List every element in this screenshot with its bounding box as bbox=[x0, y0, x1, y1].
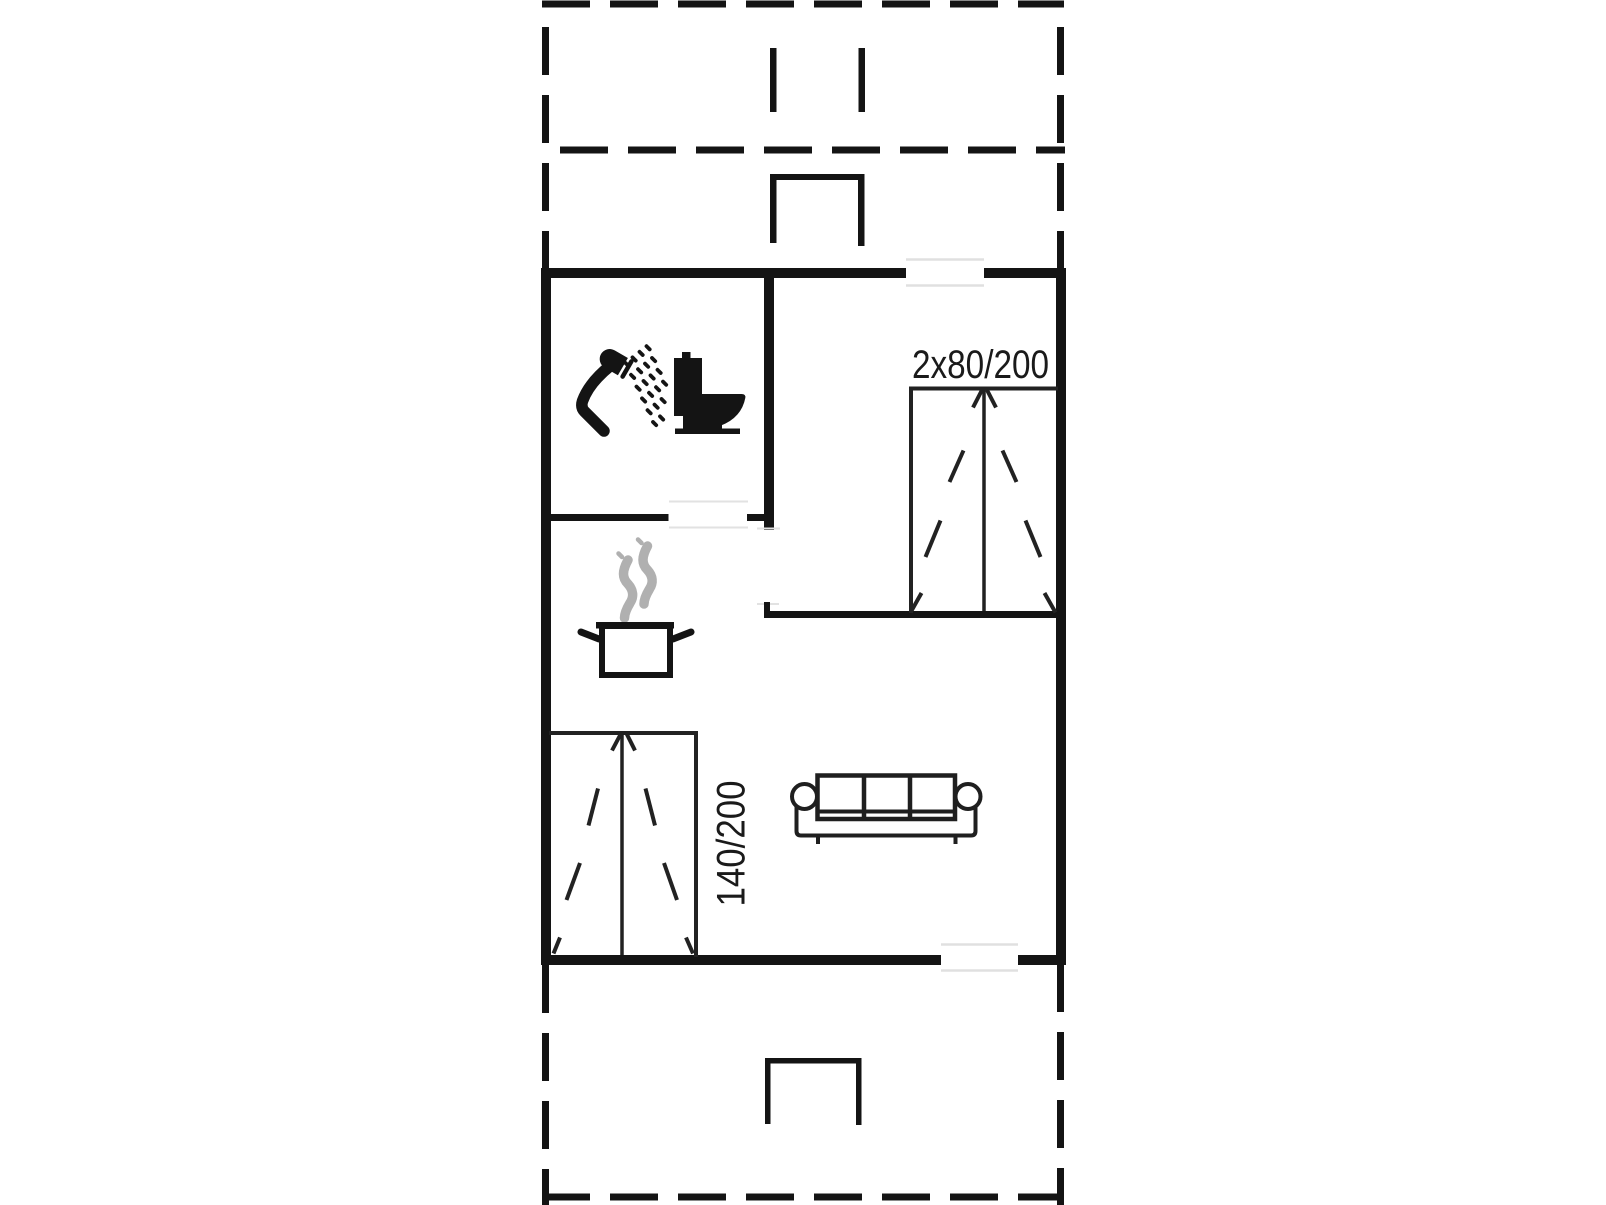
svg-text:140/200: 140/200 bbox=[710, 781, 754, 907]
svg-text:2x80/200: 2x80/200 bbox=[912, 343, 1049, 387]
